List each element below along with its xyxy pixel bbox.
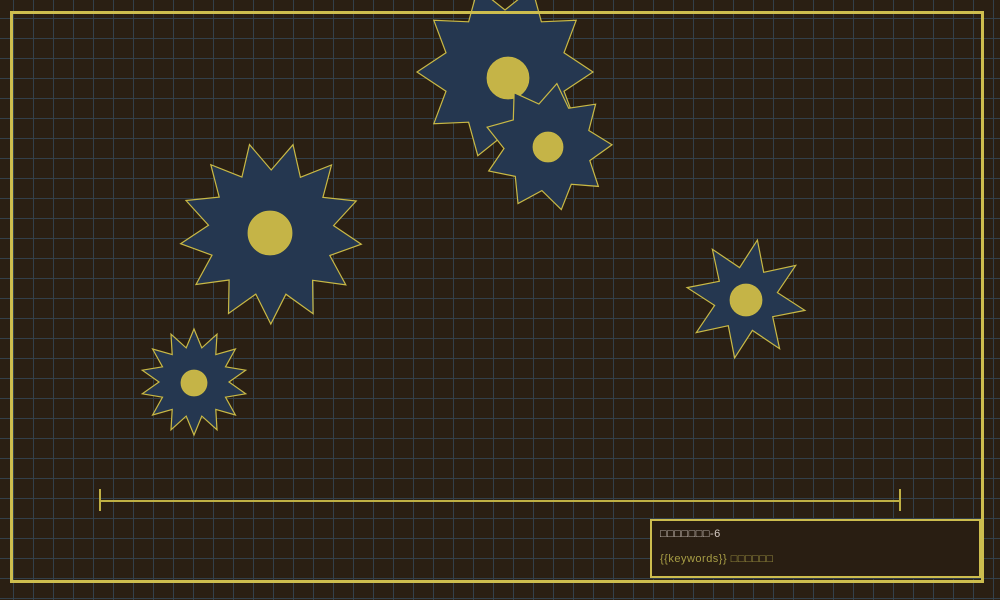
timeline-track — [100, 500, 900, 502]
info-box: □□□□□□□-6 {{keywords}} □□□□□□ — [650, 519, 981, 578]
info-line-primary: □□□□□□□-6 — [660, 528, 971, 541]
gear-core-icon — [730, 284, 762, 316]
gear[interactable] — [687, 240, 805, 358]
game-area[interactable]: □□□□□□□-6 {{keywords}} □□□□□□ — [0, 0, 1000, 600]
timeline-right-tick — [899, 489, 901, 511]
gear-core-icon — [487, 57, 529, 99]
gear[interactable] — [181, 145, 362, 324]
timeline-left-tick — [99, 489, 101, 511]
gear-core-icon — [248, 211, 292, 255]
info-line-keywords: {{keywords}} □□□□□□ — [660, 553, 971, 566]
gear-layer — [0, 0, 1000, 600]
gear-core-icon — [533, 132, 563, 162]
gear-core-icon — [181, 370, 207, 396]
gear[interactable] — [142, 329, 245, 435]
